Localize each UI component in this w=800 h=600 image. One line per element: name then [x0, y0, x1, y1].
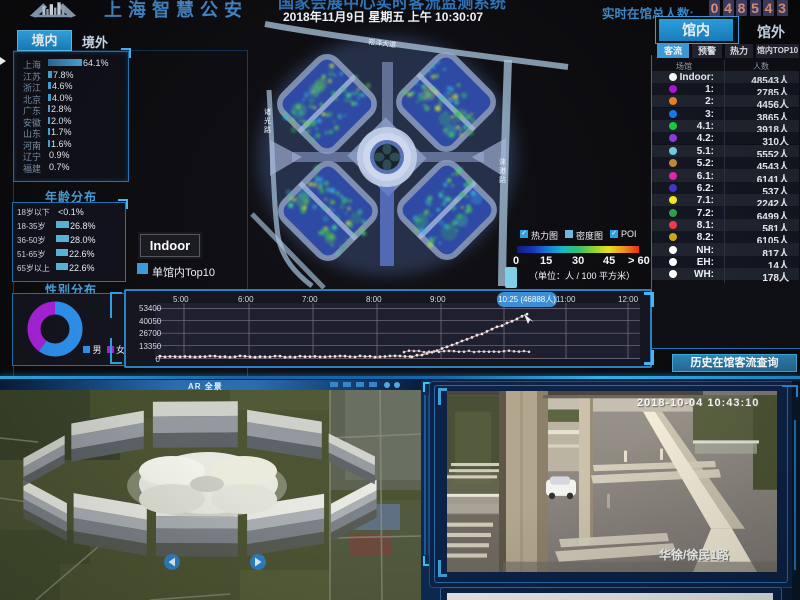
- svg-text:涞港路: 涞港路: [499, 158, 507, 185]
- svg-text:诸光路: 诸光路: [264, 107, 272, 135]
